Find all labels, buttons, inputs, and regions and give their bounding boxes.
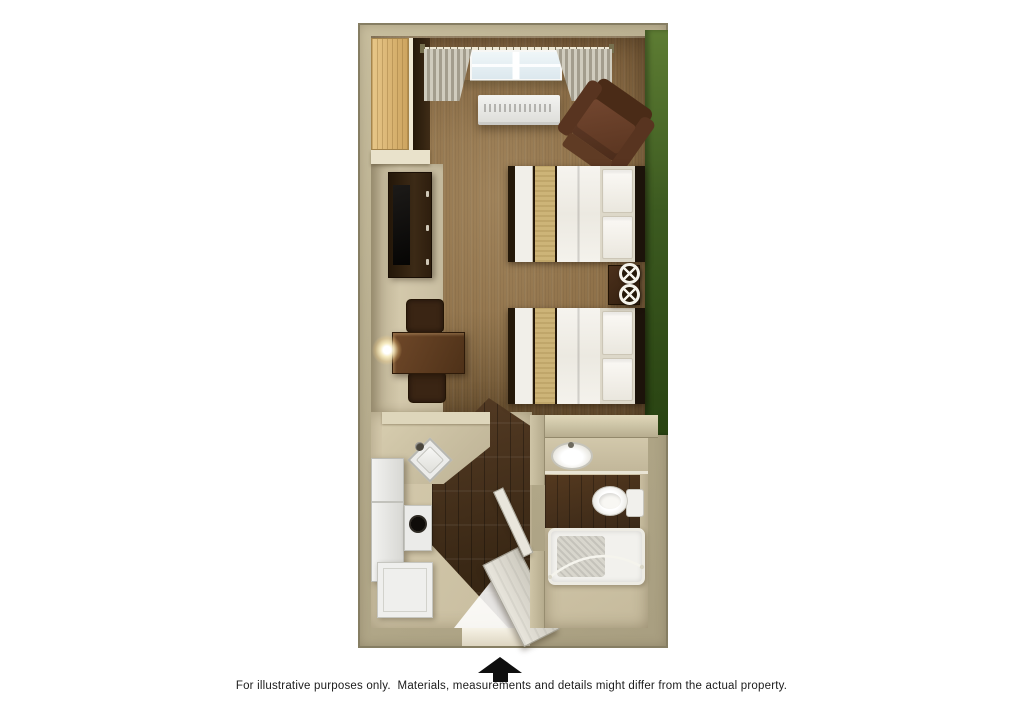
bed-headboard [635,308,645,404]
pillow [602,216,633,260]
bed-sheet [515,166,533,262]
toilet [592,486,628,516]
tv-stand [388,172,432,278]
green-accent-wall [645,30,668,435]
page: { "footer": { "disclaimer": "For illustr… [0,0,1023,716]
bed-pillows [600,166,635,262]
kitchen-faucet [415,442,424,451]
toilet-tank [626,489,644,517]
drawer-knob [426,225,429,231]
pillow [602,311,633,355]
bed-footboard [508,308,515,404]
table-lamp-1 [619,263,640,284]
stove-burner [409,515,427,533]
pillow [602,358,633,402]
pillow [602,169,633,213]
kitchen-backsplash [382,412,490,424]
bathroom-faucet [568,442,574,448]
dining-chair-top [406,299,444,333]
bed-footboard [508,166,515,262]
window-sill-shadow [464,80,568,92]
entrance-arrow-icon [478,657,522,682]
ac-unit [478,95,560,125]
bathroom-left-wall-lower [530,551,545,628]
dining-table [392,332,465,374]
bed-runner [533,308,557,404]
bathroom-top-wall [530,415,658,438]
bathroom-left-wall-upper [530,415,545,485]
closet-wall-stub [371,150,430,164]
disclaimer-text: For illustrative purposes only. Material… [0,680,1023,692]
bed-runner [533,166,557,262]
bed-sheet [557,166,601,262]
bed-1 [508,166,645,262]
shower-rod [546,523,648,585]
arrow-head [478,657,522,673]
drawer-knob [426,191,429,197]
closet-door [371,38,409,150]
bed-sheet [515,308,533,404]
floor-plan [358,23,668,648]
bed-pillows [600,308,635,404]
bed-headboard [635,166,645,262]
tv [393,185,410,265]
table-lamp-2 [619,284,640,305]
dining-chair-bottom [408,371,446,403]
drawer-knob [426,259,429,265]
window [470,50,562,81]
kitchen-cabinet [377,562,433,618]
floor-lamp-glow [372,335,402,365]
bed-sheet [557,308,601,404]
bed-2 [508,308,645,404]
